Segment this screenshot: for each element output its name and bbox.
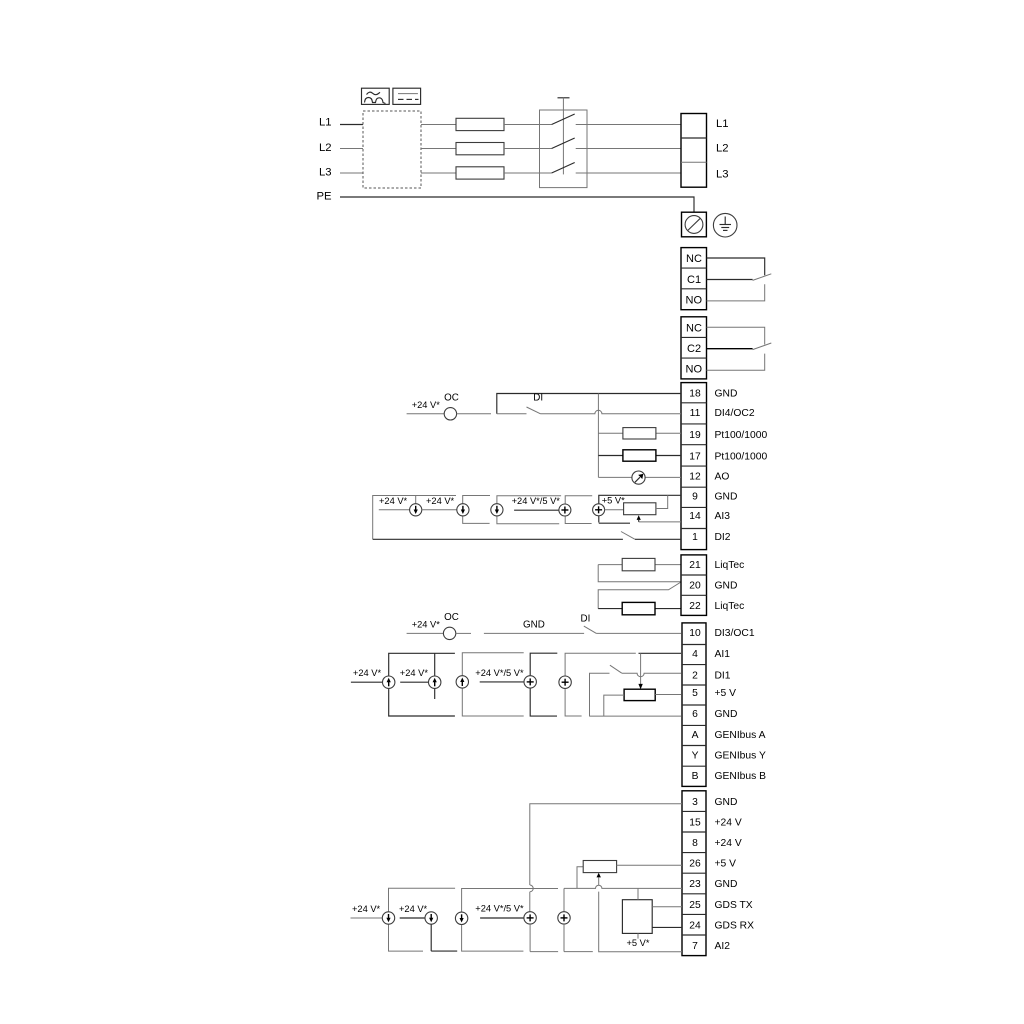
svg-text:23: 23 bbox=[689, 879, 701, 890]
svg-text:OC: OC bbox=[444, 612, 459, 623]
svg-text:17: 17 bbox=[689, 452, 701, 463]
svg-text:GDS TX: GDS TX bbox=[715, 900, 753, 911]
svg-text:14: 14 bbox=[689, 511, 701, 522]
svg-text:6: 6 bbox=[692, 709, 698, 720]
svg-text:B: B bbox=[692, 771, 699, 782]
svg-text:GND: GND bbox=[715, 388, 738, 399]
svg-text:LiqTec: LiqTec bbox=[715, 601, 745, 612]
svg-text:8: 8 bbox=[692, 838, 698, 849]
svg-text:L3: L3 bbox=[319, 167, 332, 179]
svg-text:+24 V*: +24 V* bbox=[379, 496, 408, 506]
svg-text:DI: DI bbox=[581, 613, 591, 624]
svg-text:+24 V: +24 V bbox=[715, 838, 742, 849]
svg-text:DI: DI bbox=[533, 393, 543, 404]
svg-text:+24 V*: +24 V* bbox=[412, 400, 441, 410]
svg-text:18: 18 bbox=[689, 388, 701, 399]
svg-text:GENIbus Y: GENIbus Y bbox=[715, 751, 766, 762]
svg-text:L2: L2 bbox=[319, 142, 332, 154]
svg-text:+5 V: +5 V bbox=[715, 688, 737, 699]
svg-text:C1: C1 bbox=[687, 274, 701, 286]
svg-text:+24 V*: +24 V* bbox=[399, 904, 428, 914]
svg-text:LiqTec: LiqTec bbox=[715, 560, 745, 571]
svg-text:OC: OC bbox=[444, 393, 459, 404]
svg-text:12: 12 bbox=[689, 472, 701, 483]
svg-text:4: 4 bbox=[692, 649, 698, 660]
svg-text:Pt100/1000: Pt100/1000 bbox=[715, 452, 768, 463]
svg-text:PE: PE bbox=[317, 191, 333, 203]
svg-text:A: A bbox=[692, 730, 699, 741]
svg-text:11: 11 bbox=[690, 408, 701, 419]
svg-text:2: 2 bbox=[692, 671, 698, 682]
svg-text:+5 V*: +5 V* bbox=[627, 938, 650, 948]
svg-text:9: 9 bbox=[692, 492, 698, 503]
svg-text:1: 1 bbox=[692, 532, 698, 543]
svg-text:+24 V*: +24 V* bbox=[412, 620, 441, 630]
svg-text:NO: NO bbox=[686, 364, 703, 376]
svg-text:AI2: AI2 bbox=[715, 941, 731, 952]
svg-text:+24 V*: +24 V* bbox=[352, 904, 381, 914]
svg-text:L1: L1 bbox=[716, 118, 729, 130]
svg-text:AI3: AI3 bbox=[715, 511, 731, 522]
svg-text:15: 15 bbox=[689, 817, 701, 828]
svg-text:+24 V: +24 V bbox=[715, 817, 742, 828]
svg-text:GND: GND bbox=[715, 879, 738, 890]
svg-text:L3: L3 bbox=[716, 169, 729, 181]
svg-text:DI4/OC2: DI4/OC2 bbox=[715, 408, 755, 419]
svg-text:3: 3 bbox=[692, 797, 698, 808]
svg-text:Y: Y bbox=[692, 751, 699, 762]
svg-text:GENIbus A: GENIbus A bbox=[715, 730, 766, 741]
svg-text:+5 V: +5 V bbox=[715, 859, 737, 870]
svg-text:+24 V*: +24 V* bbox=[400, 668, 429, 678]
svg-text:19: 19 bbox=[689, 430, 701, 441]
svg-text:+24 V*: +24 V* bbox=[353, 668, 382, 678]
svg-text:10: 10 bbox=[689, 628, 701, 639]
svg-text:22: 22 bbox=[689, 601, 701, 612]
svg-text:Pt100/1000: Pt100/1000 bbox=[715, 430, 768, 441]
svg-text:L2: L2 bbox=[716, 143, 729, 155]
svg-text:20: 20 bbox=[689, 580, 701, 591]
svg-text:7: 7 bbox=[692, 941, 698, 952]
svg-text:DI2: DI2 bbox=[715, 532, 731, 543]
svg-text:AO: AO bbox=[715, 472, 730, 483]
svg-text:21: 21 bbox=[689, 560, 701, 571]
svg-text:DI1: DI1 bbox=[715, 671, 731, 682]
svg-text:AI1: AI1 bbox=[715, 649, 731, 660]
svg-text:GDS RX: GDS RX bbox=[715, 920, 755, 931]
svg-text:NC: NC bbox=[686, 253, 702, 265]
svg-text:GND: GND bbox=[715, 580, 738, 591]
svg-text:24: 24 bbox=[689, 920, 701, 931]
svg-text:NC: NC bbox=[686, 323, 702, 335]
svg-text:26: 26 bbox=[689, 859, 701, 870]
svg-text:25: 25 bbox=[689, 900, 701, 911]
svg-text:GND: GND bbox=[715, 797, 738, 808]
svg-text:+24 V*: +24 V* bbox=[426, 496, 455, 506]
svg-text:+24 V*/5 V*: +24 V*/5 V* bbox=[475, 668, 524, 678]
svg-text:DI3/OC1: DI3/OC1 bbox=[715, 628, 755, 639]
svg-text:+5 V*: +5 V* bbox=[602, 496, 625, 506]
svg-text:5: 5 bbox=[692, 688, 698, 699]
svg-text:+24 V*/5 V*: +24 V*/5 V* bbox=[475, 904, 524, 914]
svg-text:L1: L1 bbox=[319, 117, 332, 129]
svg-text:GND: GND bbox=[715, 709, 738, 720]
svg-text:GENIbus B: GENIbus B bbox=[715, 771, 767, 782]
svg-text:C2: C2 bbox=[687, 343, 701, 355]
svg-text:GND: GND bbox=[523, 620, 545, 631]
svg-text:NO: NO bbox=[686, 295, 703, 307]
svg-text:GND: GND bbox=[715, 492, 738, 503]
svg-text:+24 V*/5 V*: +24 V*/5 V* bbox=[512, 496, 561, 506]
